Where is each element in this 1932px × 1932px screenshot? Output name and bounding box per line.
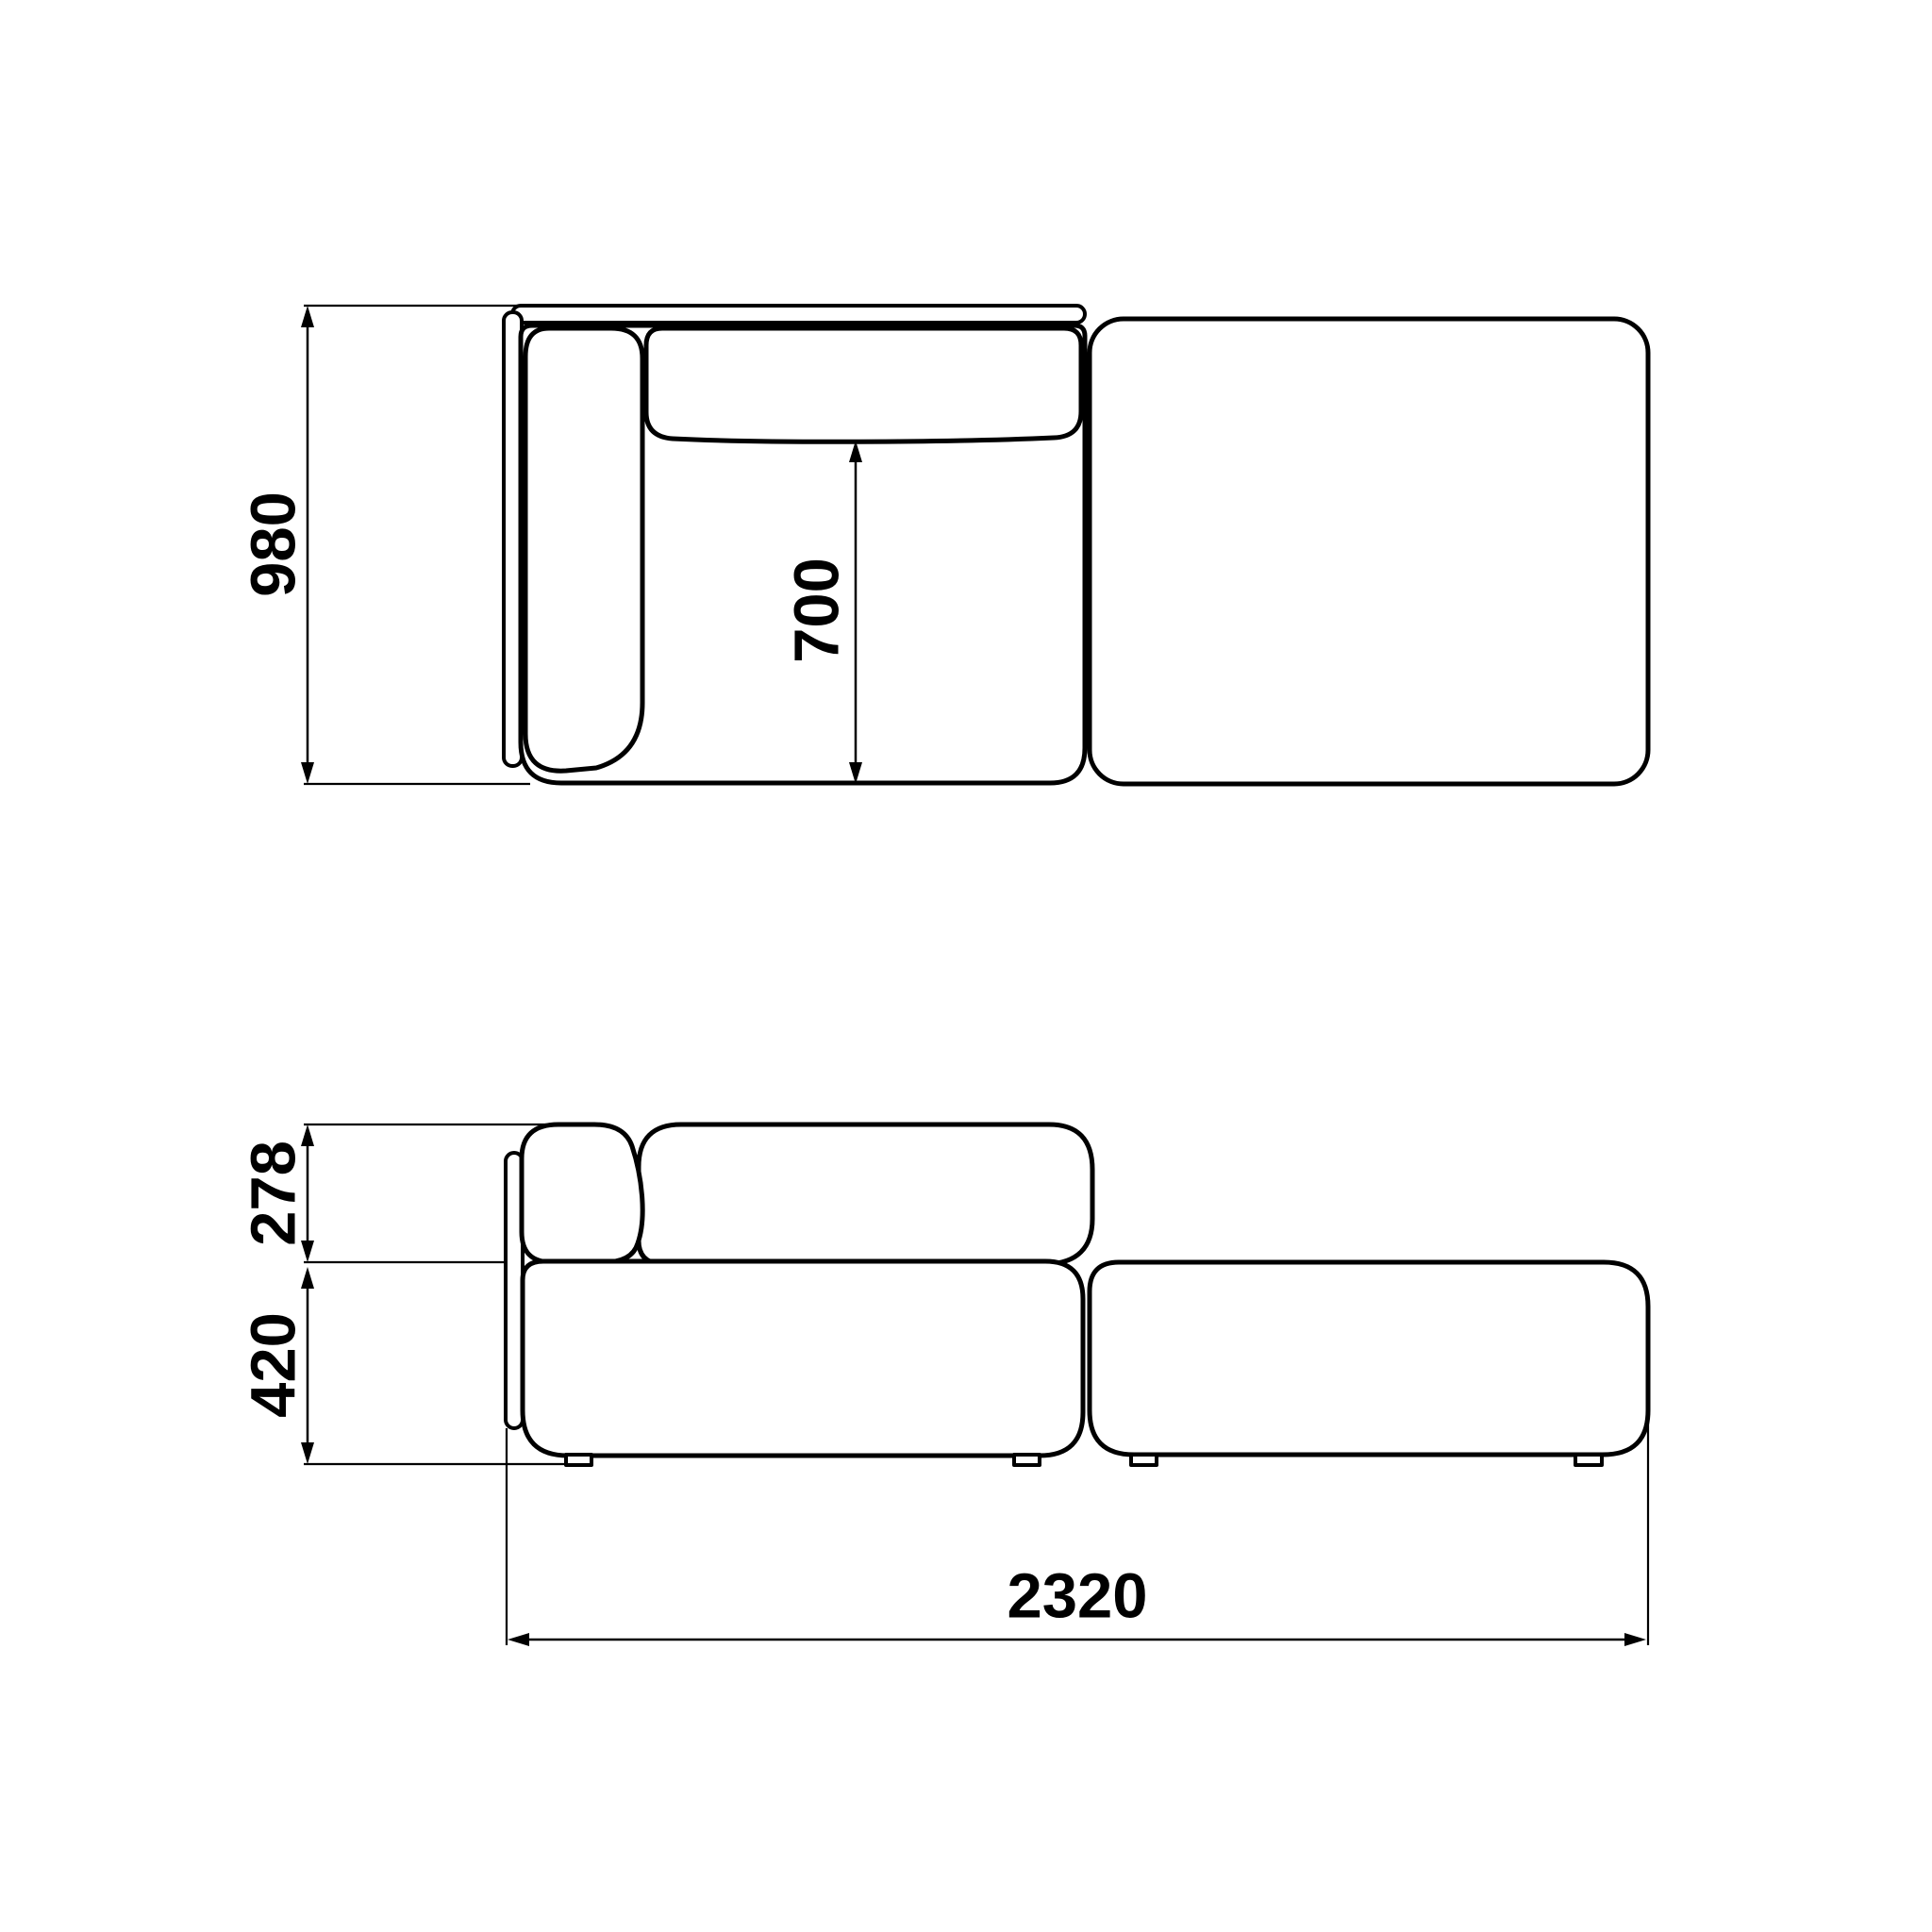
arrow-down-icon (301, 1442, 314, 1464)
dim-overall-depth: 980 (239, 306, 315, 784)
sofa-dimension-diagram: 980 700 278 (0, 0, 1932, 1932)
arrow-up-icon (301, 1267, 314, 1289)
plan-back-panel (512, 306, 1085, 323)
sofa-foot (1131, 1455, 1157, 1465)
side-back-cushion-large (639, 1124, 1092, 1264)
dim-label-overall-length: 2320 (1007, 1561, 1147, 1632)
side-ottoman-module (1090, 1262, 1648, 1455)
arrow-left-icon (508, 1633, 529, 1646)
sofa-foot (566, 1455, 591, 1465)
arrow-down-icon (301, 762, 314, 784)
sofa-foot (1014, 1455, 1040, 1465)
dim-backrest-height: 278 (239, 1124, 315, 1262)
dim-label-seat-height: 420 (239, 1312, 309, 1418)
plan-ottoman-module (1090, 319, 1648, 784)
drawing-canvas: 980 700 278 (0, 0, 1932, 1932)
plan-side-cushion (525, 328, 642, 771)
dim-seat-height: 420 (239, 1267, 315, 1464)
sofa-foot (1575, 1455, 1602, 1465)
arrow-right-icon (1624, 1633, 1646, 1646)
dim-label-seat-depth: 700 (782, 558, 853, 663)
arrow-up-icon (301, 306, 314, 327)
plan-back-cushion (646, 328, 1081, 441)
side-view: 278 420 2320 (239, 1124, 1649, 1646)
side-back-cushion-small (522, 1124, 642, 1262)
plan-view: 980 700 (239, 306, 1649, 784)
dim-label-backrest-height: 278 (239, 1141, 309, 1246)
side-seat-module (523, 1261, 1083, 1456)
dim-label-overall-depth: 980 (239, 491, 309, 597)
